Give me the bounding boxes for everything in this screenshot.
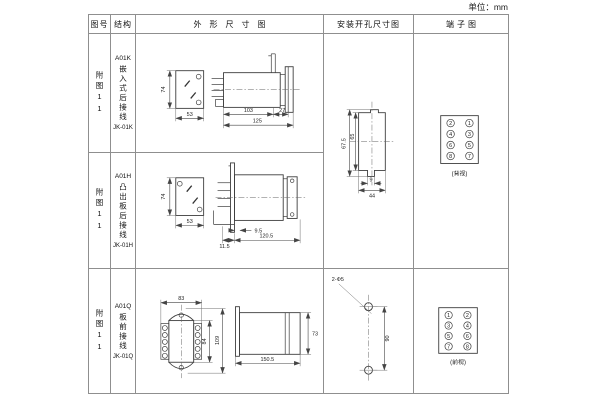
terminal-diagram-front: 1 3 5 7 2 4 6 8 (前视) [414,269,508,393]
dim-front-height: 74 [161,86,167,92]
outline-a01h-drawing: 74 53 9. [136,153,323,268]
model-label: A01H [115,173,131,180]
code-label: JK-01K [113,125,133,131]
terminal-number: 6 [466,334,469,340]
dim-rear-length: 27 [279,108,285,114]
terminal-number: 4 [466,323,469,329]
side-view: 9.5 11.5 120.5 [214,163,306,250]
header-structure: 结构 [111,15,136,34]
terminal-number: 1 [468,121,471,127]
terminal-number: 5 [447,334,450,340]
view-label-front: (前视) [450,358,466,366]
dim-side-length: 150.5 [260,357,274,363]
code-label: JK-01Q [113,354,133,360]
panel-cutout-drawing: 67.5 65 9 44 [324,34,413,268]
terminal-pins-front: 1 3 5 7 2 4 6 8 [445,311,471,350]
header-terminal-diagram: 端子图 [414,15,509,34]
hole-callout: 2-Φ5 [332,277,344,283]
dim-inner-height: 84 [202,338,208,344]
dim-cutout-height: 67.5 [342,138,348,149]
header-cutout-drawing: 安装开孔尺寸图 [324,15,414,34]
terminal-number: 4 [449,132,452,138]
structure-label: 板前接线 [118,313,129,351]
structure-label: 嵌入式后接线 [118,65,129,122]
terminal-number: 7 [468,154,471,160]
dim-total-length: 125 [253,119,262,125]
structure-label: 凸出板后接线 [118,183,129,240]
terminal-diagram-cell-rear: 2 4 6 8 1 3 5 7 (背视) [414,34,509,269]
front-view: 74 53 [161,71,204,122]
dim-front-height: 74 [161,194,167,200]
dim-front-width: 53 [187,219,193,225]
front-view: 74 53 [161,178,204,229]
dim-body-length: 103 [244,108,253,114]
terminal-pins-rear: 2 4 6 8 1 3 5 7 [447,119,473,160]
side-view: 73 150.5 [235,307,318,367]
view-label-rear: (背视) [452,169,468,177]
structure-cell-a01q: A01Q 板前接线 JK-01Q [111,269,136,394]
terminal-number: 2 [449,121,452,127]
front-view: 83 84 109 [161,296,226,378]
dim-cutout-width: 44 [369,193,375,199]
dim-total-height: 109 [215,336,221,345]
terminal-number: 3 [468,132,471,138]
terminal-number: 7 [447,344,450,350]
dim-notch-width: 9 [369,177,372,183]
unit-label: 单位：mm [88,1,508,13]
manual-page: 单位：mm 图号 结构 外形尺寸图 安装开孔尺寸图 端子图 附图11 A01K … [0,0,600,400]
header-figure-no: 图号 [89,15,111,34]
figure-no-cell-a01k: 附图11 [89,34,111,153]
outline-drawing-cell-a01q: 83 84 109 73 150.5 [136,269,324,394]
terminal-number: 6 [449,143,452,149]
terminal-number: 8 [449,154,452,160]
structure-cell-a01h: A01H 凸出板后接线 JK-01H [111,153,136,269]
dim-front-width: 83 [178,296,184,302]
dim-bracket-depth: 11.5 [219,244,229,250]
model-label: A01K [115,55,131,62]
dim-side-height: 73 [312,331,318,337]
dim-cutout-inner-height: 65 [350,134,356,140]
outline-a01k-drawing: 74 53 [136,34,323,152]
figure-no-label: 附图11 [94,71,105,116]
terminal-number: 1 [447,313,450,319]
model-label: A01Q [115,303,132,310]
code-label: JK-01H [113,243,133,249]
terminal-number: 2 [466,313,469,319]
dim-body-length: 120.5 [259,234,273,240]
terminal-number: 3 [447,323,450,329]
terminal-diagram-rear: 2 4 6 8 1 3 5 7 (背视) [414,34,508,268]
figure-no-cell-a01q: 附图11 [89,269,111,394]
figure-no-cell-a01h: 附图11 [89,153,111,269]
cutout-drawing-cell: 67.5 65 9 44 [324,34,414,269]
terminal-number: 5 [468,143,471,149]
header-outline-drawing: 外形尺寸图 [136,15,324,34]
terminal-diagram-cell-front: 1 3 5 7 2 4 6 8 (前视) [414,269,509,394]
outline-a01q-drawing: 83 84 109 73 150.5 [136,269,323,393]
dim-hole-pitch: 90 [385,335,391,341]
mounting-holes-cell: 90 2-Φ5 [324,269,414,394]
outline-drawing-cell-a01h: 74 53 9. [136,153,324,269]
dim-front-width: 53 [187,112,193,118]
figure-no-label: 附图11 [94,188,105,233]
mounting-holes-drawing: 90 2-Φ5 [324,269,413,393]
terminal-number: 8 [466,344,469,350]
structure-cell-a01k: A01K 嵌入式后接线 JK-01K [111,34,136,153]
side-view: 103 27 125 [212,54,302,128]
outline-drawing-cell-a01k: 74 53 [136,34,324,153]
dimension-table: 图号 结构 外形尺寸图 安装开孔尺寸图 端子图 附图11 A01K 嵌入式后接线… [88,14,509,394]
figure-no-label: 附图11 [94,309,105,354]
